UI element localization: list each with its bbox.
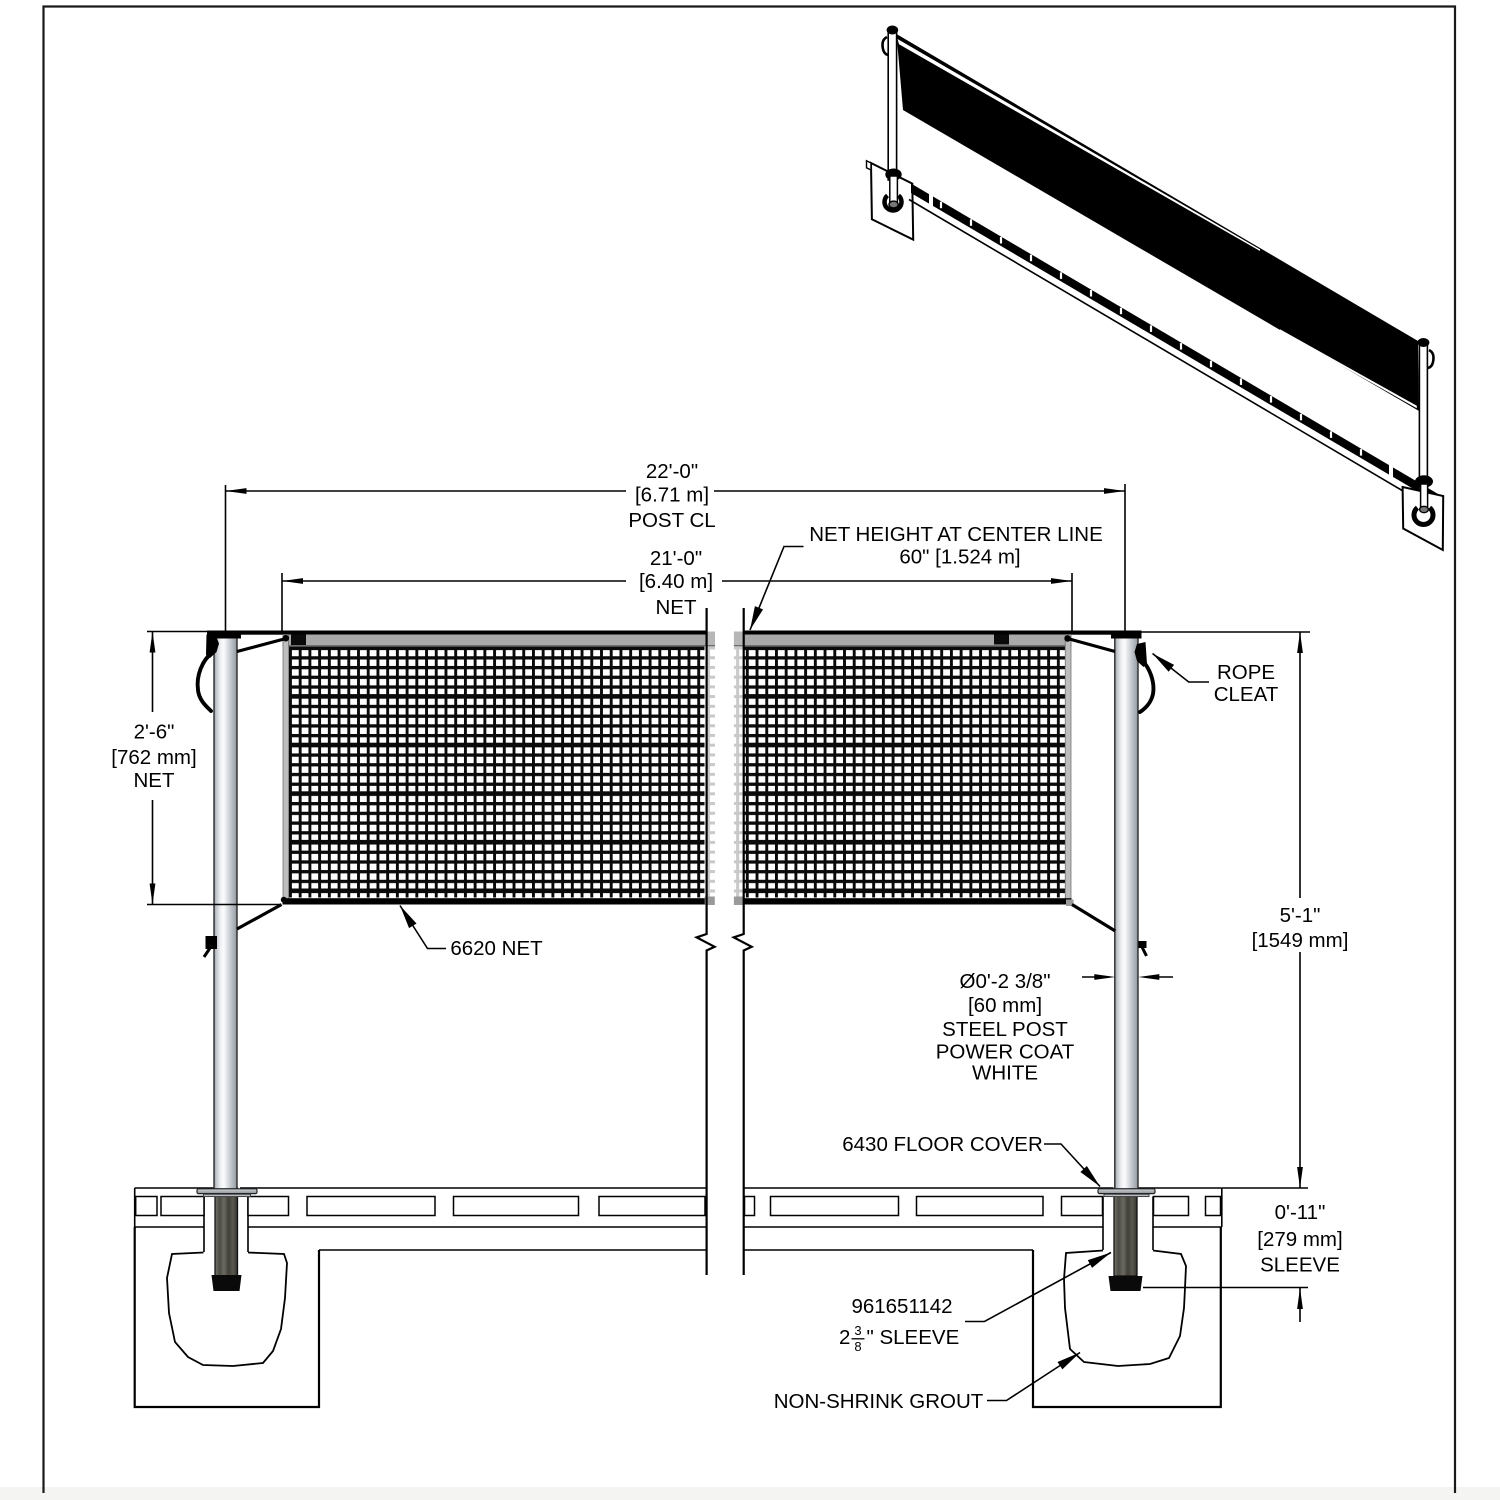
svg-text:[762 mm]: [762 mm] (111, 746, 196, 769)
svg-text:ROPE: ROPE (1217, 661, 1275, 684)
svg-text:[6.71 m]: [6.71 m] (635, 484, 709, 507)
svg-text:2'-6": 2'-6" (134, 721, 175, 744)
svg-text:22'-0": 22'-0" (646, 460, 698, 483)
svg-text:6620 NET: 6620 NET (450, 937, 543, 960)
svg-text:NET: NET (656, 596, 697, 619)
svg-text:[60 mm]: [60 mm] (968, 994, 1042, 1017)
svg-text:" SLEEVE: " SLEEVE (867, 1326, 960, 1349)
svg-text:6430 FLOOR COVER: 6430 FLOOR COVER (842, 1133, 1043, 1156)
svg-text:NET HEIGHT AT CENTER LINE: NET HEIGHT AT CENTER LINE (809, 523, 1103, 546)
svg-text:60" [1.524 m]: 60" [1.524 m] (899, 546, 1020, 569)
svg-text:NON-SHRINK GROUT: NON-SHRINK GROUT (774, 1390, 984, 1413)
svg-text:SLEEVE: SLEEVE (1260, 1254, 1340, 1277)
svg-text:2: 2 (839, 1326, 850, 1349)
svg-text:WHITE: WHITE (972, 1062, 1038, 1085)
svg-text:5'-1": 5'-1" (1280, 904, 1321, 927)
svg-text:21'-0": 21'-0" (650, 547, 702, 570)
svg-text:3: 3 (854, 1323, 861, 1338)
svg-text:0'-11": 0'-11" (1275, 1201, 1326, 1224)
svg-text:[1549 mm]: [1549 mm] (1252, 929, 1349, 952)
svg-text:[6.40 m]: [6.40 m] (639, 570, 713, 593)
svg-text:Ø0'-2 3/8": Ø0'-2 3/8" (960, 970, 1051, 993)
svg-text:POWER COAT: POWER COAT (936, 1041, 1075, 1064)
svg-text:CLEAT: CLEAT (1214, 683, 1279, 706)
svg-text:STEEL POST: STEEL POST (942, 1018, 1068, 1041)
svg-text:961651142: 961651142 (851, 1295, 952, 1318)
svg-text:[279 mm]: [279 mm] (1257, 1228, 1342, 1251)
svg-text:NET: NET (134, 769, 175, 792)
svg-text:POST CL: POST CL (628, 509, 715, 532)
svg-text:8: 8 (854, 1339, 861, 1354)
